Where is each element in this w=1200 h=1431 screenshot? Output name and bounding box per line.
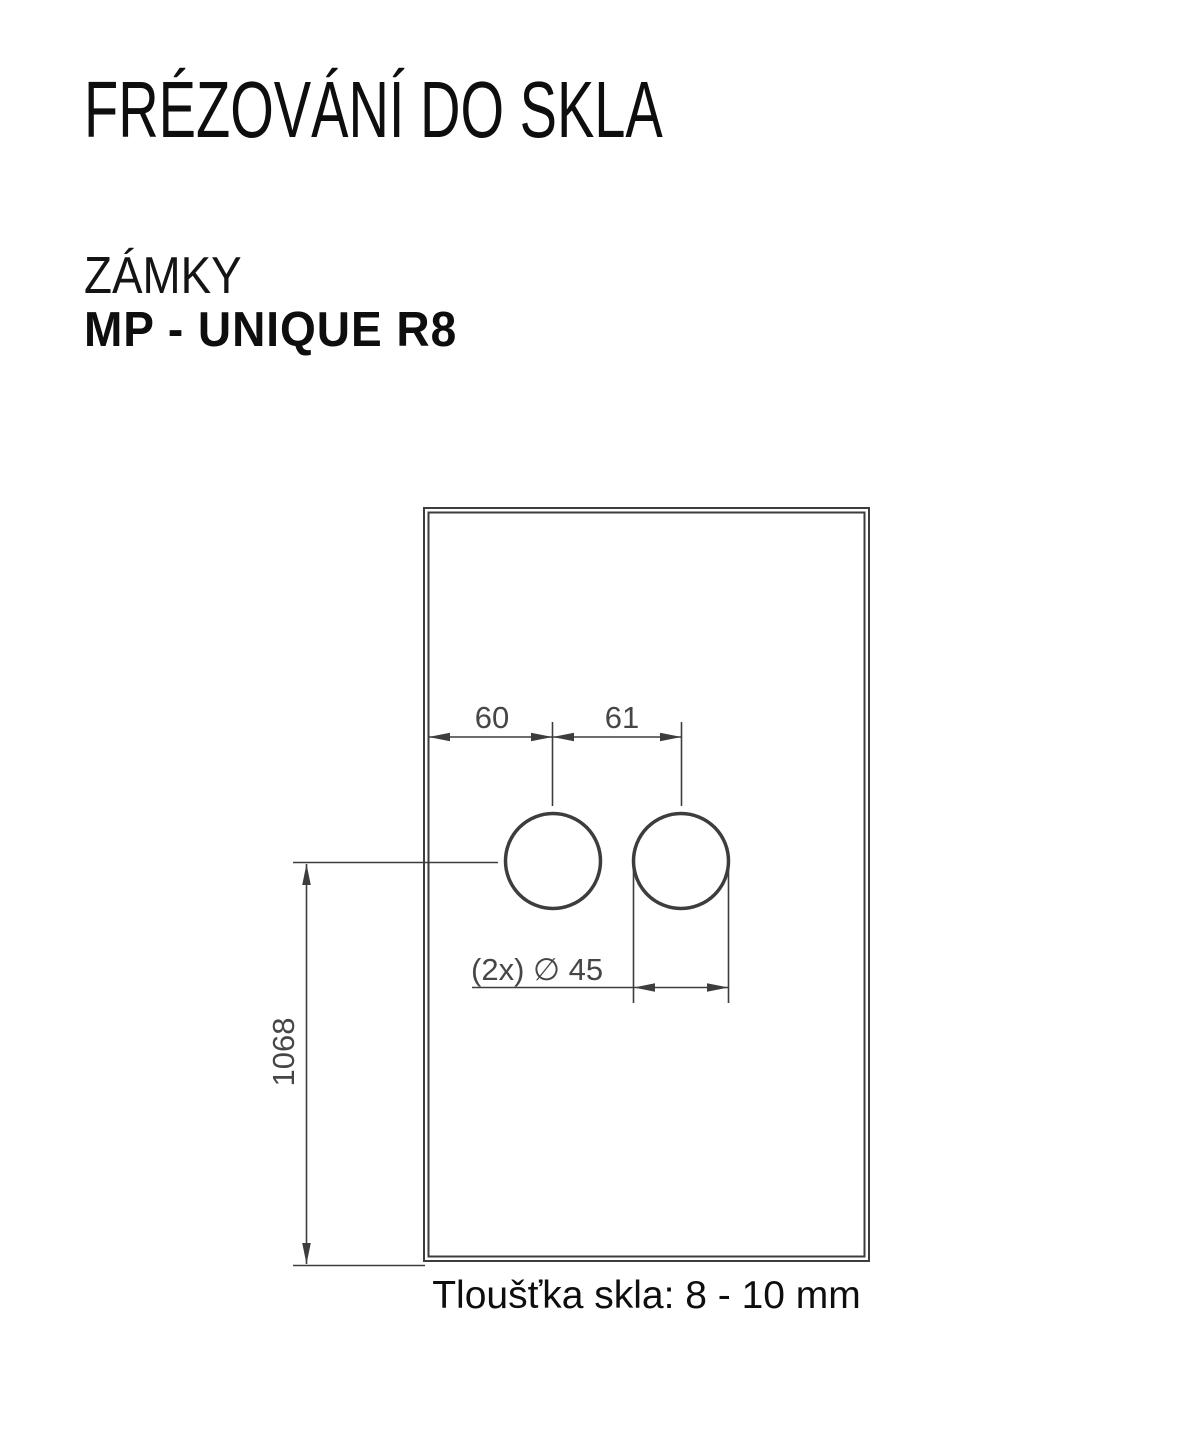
arrowhead-61-right [660, 733, 682, 741]
dimension-1068: 1068 [266, 863, 498, 1266]
hole-left-circle [506, 814, 601, 909]
technical-drawing: 60 61 1068 (2x) ∅ 45 [0, 0, 1200, 1431]
arrowhead-left-edge [429, 733, 451, 741]
dim-60-label: 60 [475, 700, 509, 735]
arrowhead-diameter-right [707, 983, 729, 991]
arrowhead-1068-up [302, 864, 311, 885]
dim-61-label: 61 [605, 700, 639, 735]
arrowhead-diameter-left [634, 983, 656, 991]
dimension-60-61: 60 61 [429, 700, 682, 806]
glass-panel [424, 508, 869, 1261]
arrowhead-61-left [553, 733, 575, 741]
hole-right-circle [634, 814, 729, 909]
holes [506, 814, 729, 909]
glass-outer-outline [424, 508, 869, 1261]
arrowhead-60-right [531, 733, 553, 741]
glass-inner-outline [429, 513, 865, 1257]
dim-diameter-label: (2x) ∅ 45 [471, 952, 603, 987]
glass-thickness-note: Tloušťka skla: 8 - 10 mm [424, 1276, 869, 1315]
dim-1068-label: 1068 [266, 1018, 301, 1087]
arrowhead-1068-down [302, 1243, 311, 1264]
